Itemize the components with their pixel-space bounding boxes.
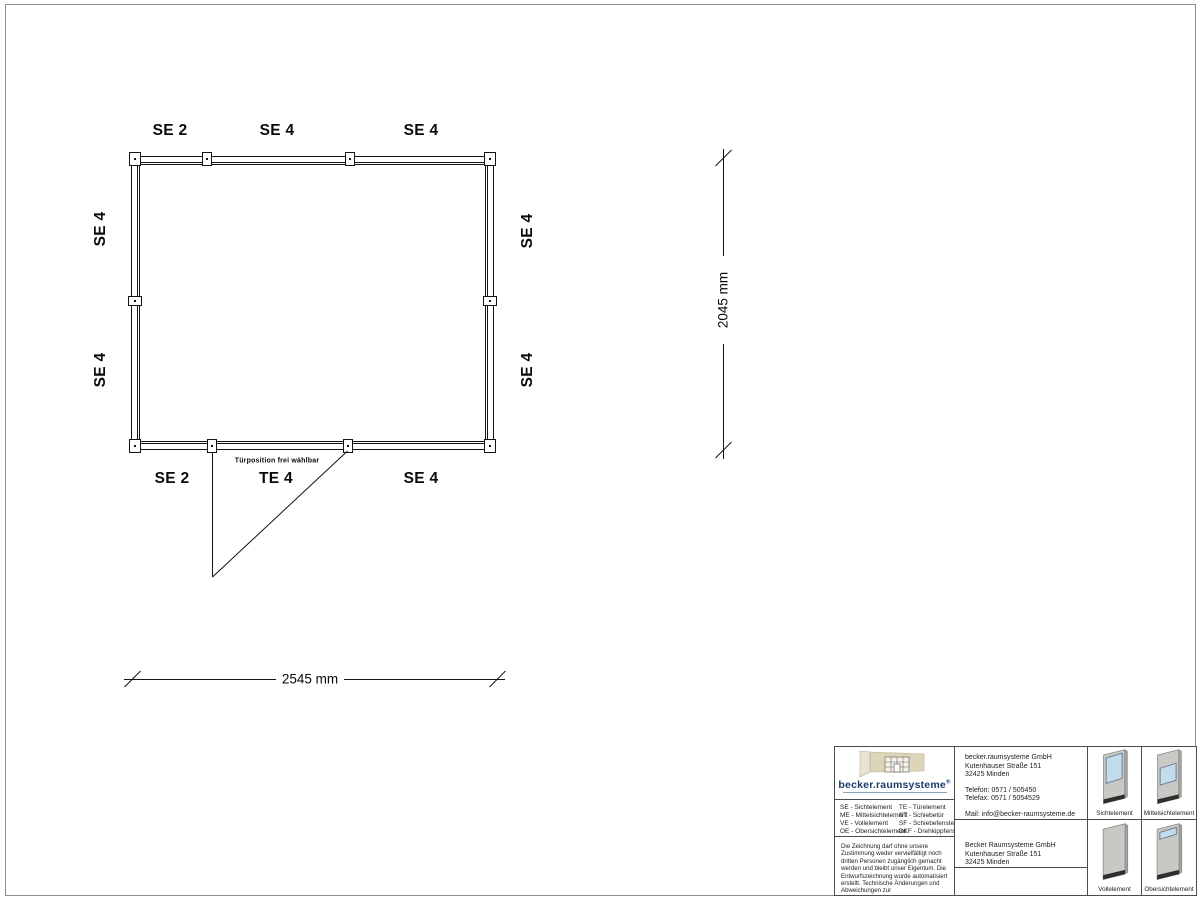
- legend-item: OE - Obersichtelement: [840, 828, 899, 836]
- logo-underline: [843, 792, 947, 793]
- legend-item: ME - Mittelsichtelement: [840, 812, 899, 820]
- contact-street: Kutenhauser Straße 151: [965, 763, 1087, 772]
- element-label: Mittelsichtelement: [1144, 810, 1194, 817]
- manufacturer-city: 32425 Minden: [965, 859, 1087, 868]
- height-dimension-label: 2045 mm: [716, 269, 731, 331]
- disclaimer-text: Die Zeichnung darf ohne unsere Zustimmun…: [841, 843, 948, 895]
- copyright-disclaimer: Die Zeichnung darf ohne unsere Zustimmun…: [835, 837, 954, 895]
- contact-mail: Mail: info@becker-raumsysteme.de: [965, 811, 1087, 820]
- sichtelement-icon: [1093, 747, 1137, 809]
- wall-label-left-2: SE 4: [92, 353, 110, 388]
- empty-cell: [955, 868, 1087, 895]
- element-legend: SE - Sichtelement ME - Mittelsichtelemen…: [835, 800, 954, 837]
- wall-label-right-1: SE 4: [519, 214, 537, 249]
- wall-outline: [132, 157, 494, 450]
- element-label: Sichtelement: [1096, 810, 1132, 817]
- contact-fax: Telefax: 0571 / 5054529: [965, 795, 1087, 804]
- registered-mark: ®: [946, 780, 951, 786]
- door-position-note: Türposition frei wählbar: [235, 458, 320, 465]
- title-block-col-address: becker.raumsysteme GmbH Kutenhauser Stra…: [955, 747, 1088, 895]
- legend-item: VE - Vollelement: [840, 820, 899, 828]
- manufacturer-name: Becker Raumsysteme GmbH: [965, 842, 1087, 851]
- element-sample: Vollelement: [1088, 820, 1141, 895]
- company-contact: becker.raumsysteme GmbH Kutenhauser Stra…: [955, 747, 1087, 820]
- legend-item: DKF - Drehkippfenster: [899, 828, 949, 836]
- obersichtelement-icon: [1147, 821, 1191, 885]
- wall-label-top-1: SE 2: [153, 122, 188, 140]
- wall-label-top-3: SE 4: [404, 122, 439, 140]
- logo-art-icon: [857, 750, 933, 778]
- contact-phone: Telefon: 0571 / 505450: [965, 787, 1087, 796]
- wall-label-bottom-2: TE 4: [259, 470, 293, 488]
- width-dimension-label: 2545 mm: [279, 672, 341, 687]
- legend-item: TE - Türelement: [899, 804, 949, 812]
- vollelement-icon: [1093, 821, 1137, 885]
- element-sample: Mittelsichtelement: [1142, 747, 1196, 820]
- element-label: Obersichtelement: [1144, 886, 1193, 893]
- contact-name: becker.raumsysteme GmbH: [965, 754, 1087, 763]
- manufacturer-address: Becker Raumsysteme GmbH Kutenhauser Stra…: [955, 820, 1087, 868]
- legend-item: ST - Schiebetür: [899, 812, 949, 820]
- element-sample: Sichtelement: [1088, 747, 1141, 820]
- logo-wordmark: becker.raumsysteme®: [838, 779, 950, 791]
- wall-joints: [129, 153, 497, 453]
- wall-label-left-1: SE 4: [92, 212, 110, 247]
- company-logo: becker.raumsysteme®: [835, 747, 954, 800]
- mittelsichtelement-icon: [1147, 747, 1191, 809]
- title-block: becker.raumsysteme® SE - Sichtelement ME…: [834, 746, 1197, 896]
- title-block-col-elements-1: Sichtelement Vollelement: [1088, 747, 1142, 895]
- title-block-col-elements-2: Mittelsichtelement Obersichtelement: [1142, 747, 1196, 895]
- title-block-col-logo: becker.raumsysteme® SE - Sichtelement ME…: [835, 747, 955, 895]
- manufacturer-street: Kutenhauser Straße 151: [965, 851, 1087, 860]
- contact-city: 32425 Minden: [965, 771, 1087, 780]
- element-label: Vollelement: [1098, 886, 1131, 893]
- element-sample: Obersichtelement: [1142, 820, 1196, 895]
- wall-label-right-2: SE 4: [519, 353, 537, 388]
- wall-label-bottom-1: SE 2: [155, 470, 190, 488]
- wall-label-top-2: SE 4: [260, 122, 295, 140]
- wall-label-bottom-3: SE 4: [404, 470, 439, 488]
- wall-joint-dots: [134, 158, 491, 447]
- legend-item: SE - Sichtelement: [840, 804, 899, 812]
- legend-item: SF - Schiebefenster: [899, 820, 949, 828]
